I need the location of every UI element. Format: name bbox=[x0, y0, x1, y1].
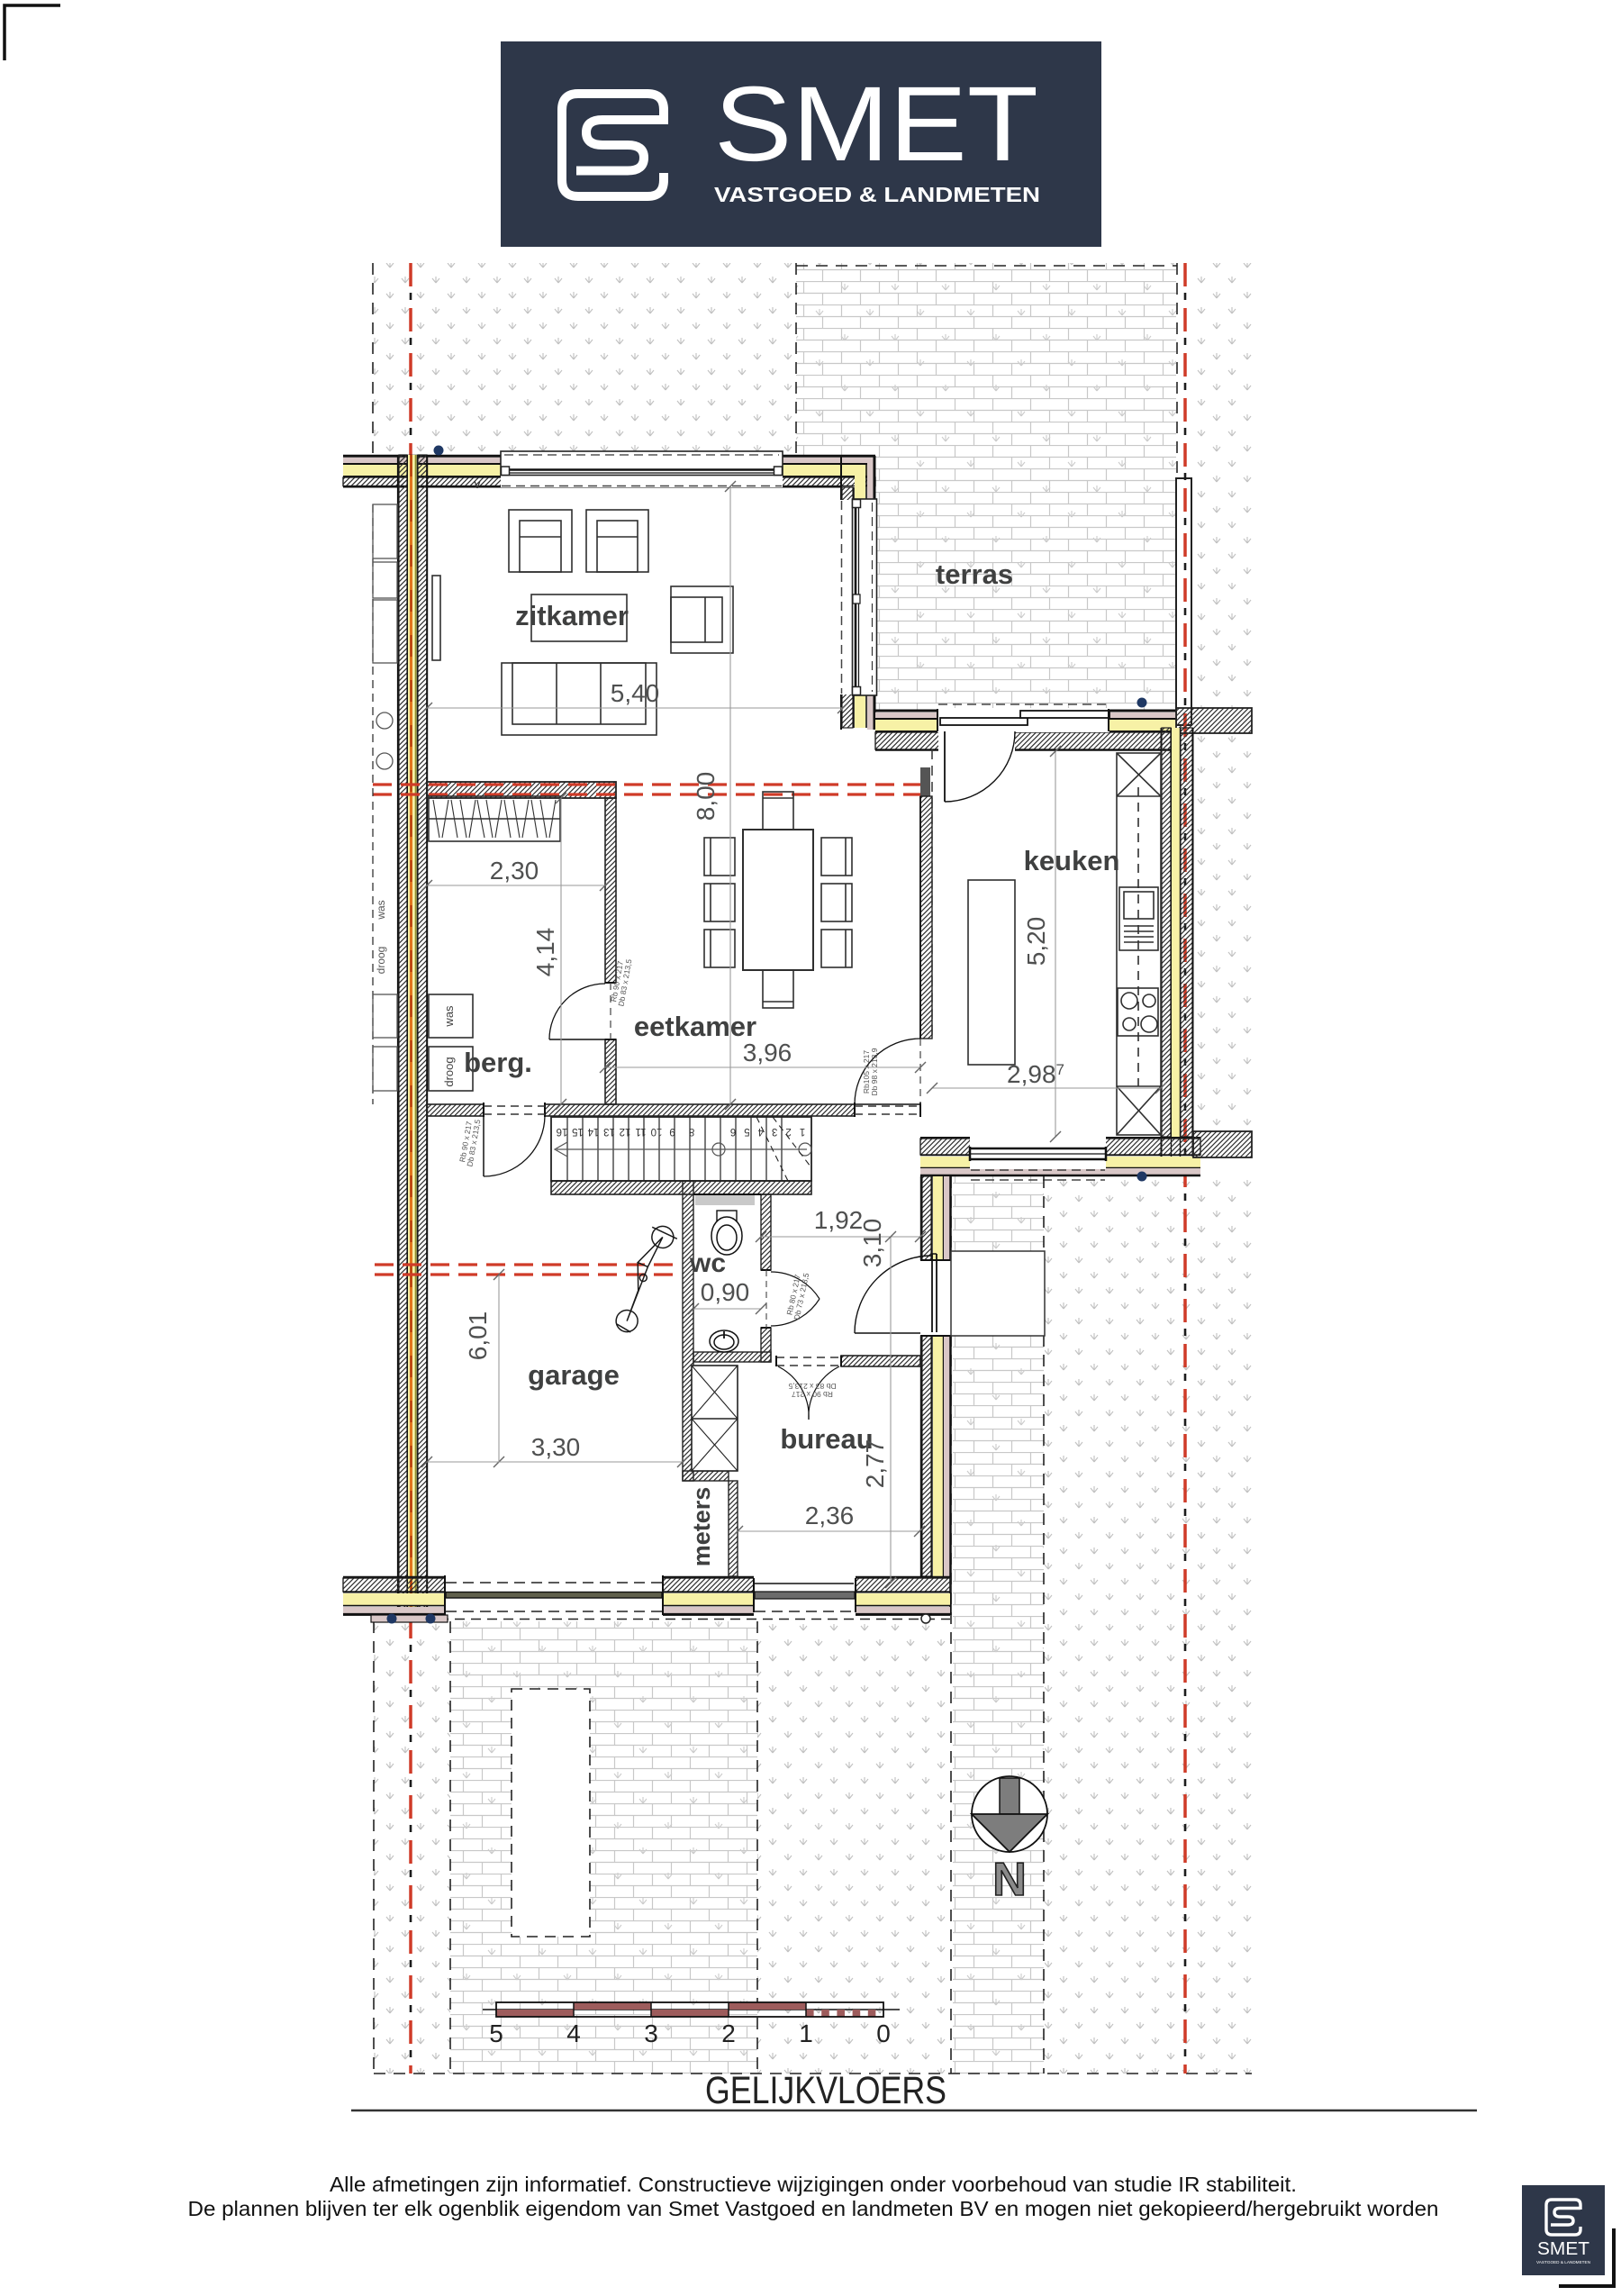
svg-text:13: 13 bbox=[603, 1126, 615, 1137]
svg-text:6: 6 bbox=[730, 1126, 736, 1137]
svg-text:8: 8 bbox=[689, 1126, 694, 1137]
svg-text:wc: wc bbox=[689, 1248, 726, 1278]
svg-text:v: v bbox=[475, 476, 481, 491]
svg-text:9: 9 bbox=[669, 1126, 675, 1137]
svg-text:14: 14 bbox=[587, 1126, 599, 1137]
svg-text:2,36: 2,36 bbox=[805, 1502, 855, 1529]
svg-text:4: 4 bbox=[757, 1126, 764, 1137]
svg-text:terras: terras bbox=[936, 558, 1013, 590]
svg-text:1,92: 1,92 bbox=[814, 1206, 864, 1234]
svg-text:droog: droog bbox=[375, 947, 387, 975]
svg-text:Db 98 x 213,9: Db 98 x 213,9 bbox=[870, 1048, 879, 1095]
svg-text:bureau: bureau bbox=[780, 1423, 873, 1455]
svg-text:keuken: keuken bbox=[1024, 845, 1120, 876]
svg-text:SMET: SMET bbox=[714, 65, 1038, 184]
svg-text:2: 2 bbox=[721, 2019, 736, 2047]
svg-text:15: 15 bbox=[572, 1126, 584, 1137]
svg-text:2,987: 2,987 bbox=[1007, 1060, 1064, 1088]
svg-text:3,30: 3,30 bbox=[531, 1433, 581, 1461]
svg-text:12: 12 bbox=[620, 1126, 631, 1137]
svg-text:GELIJKVLOERS: GELIJKVLOERS bbox=[705, 2069, 946, 2112]
svg-text:3,10: 3,10 bbox=[858, 1219, 886, 1268]
svg-text:5: 5 bbox=[489, 2019, 503, 2047]
svg-text:3: 3 bbox=[772, 1126, 777, 1137]
svg-text:1: 1 bbox=[800, 1126, 805, 1137]
svg-text:4,14: 4,14 bbox=[531, 928, 559, 977]
svg-text:De plannen blijven ter elk oge: De plannen blijven ter elk ogenblik eige… bbox=[188, 2197, 1439, 2220]
svg-text:0,90: 0,90 bbox=[701, 1278, 750, 1306]
svg-text:was: was bbox=[375, 900, 387, 920]
svg-text:0: 0 bbox=[876, 2019, 891, 2047]
svg-text:garage: garage bbox=[528, 1359, 620, 1391]
svg-text:VASTGOED & LANDMETEN: VASTGOED & LANDMETEN bbox=[1536, 2260, 1590, 2264]
svg-text:5,40: 5,40 bbox=[611, 679, 660, 707]
svg-text:VASTGOED & LANDMETEN: VASTGOED & LANDMETEN bbox=[714, 183, 1040, 206]
svg-text:10: 10 bbox=[651, 1126, 663, 1137]
svg-text:SMET: SMET bbox=[1537, 2239, 1589, 2259]
svg-text:2,77: 2,77 bbox=[861, 1439, 889, 1489]
svg-text:N: N bbox=[992, 1854, 1027, 1906]
svg-text:8,00: 8,00 bbox=[692, 772, 720, 821]
svg-text:6,01: 6,01 bbox=[464, 1311, 492, 1361]
svg-text:4: 4 bbox=[566, 2019, 581, 2047]
svg-text:11: 11 bbox=[636, 1126, 647, 1137]
svg-text:1: 1 bbox=[799, 2019, 813, 2047]
svg-text:3,96: 3,96 bbox=[743, 1039, 792, 1066]
svg-text:berg.: berg. bbox=[464, 1047, 532, 1078]
svg-text:3: 3 bbox=[644, 2019, 658, 2047]
svg-text:2: 2 bbox=[785, 1126, 791, 1137]
svg-text:2,30: 2,30 bbox=[490, 857, 539, 885]
svg-text:Alle afmetingen zijn informati: Alle afmetingen zijn informatief. Constr… bbox=[330, 2173, 1297, 2196]
svg-text:5,20: 5,20 bbox=[1022, 917, 1050, 966]
svg-text:meters: meters bbox=[688, 1487, 715, 1567]
svg-text:16: 16 bbox=[557, 1126, 568, 1137]
svg-text:5: 5 bbox=[744, 1126, 749, 1137]
svg-text:Db 83 x 213,5: Db 83 x 213,5 bbox=[788, 1382, 836, 1391]
svg-text:droog: droog bbox=[442, 1057, 456, 1086]
svg-text:was: was bbox=[442, 1005, 456, 1028]
svg-text:eetkamer: eetkamer bbox=[634, 1011, 756, 1042]
svg-text:zitkamer: zitkamer bbox=[515, 600, 629, 631]
